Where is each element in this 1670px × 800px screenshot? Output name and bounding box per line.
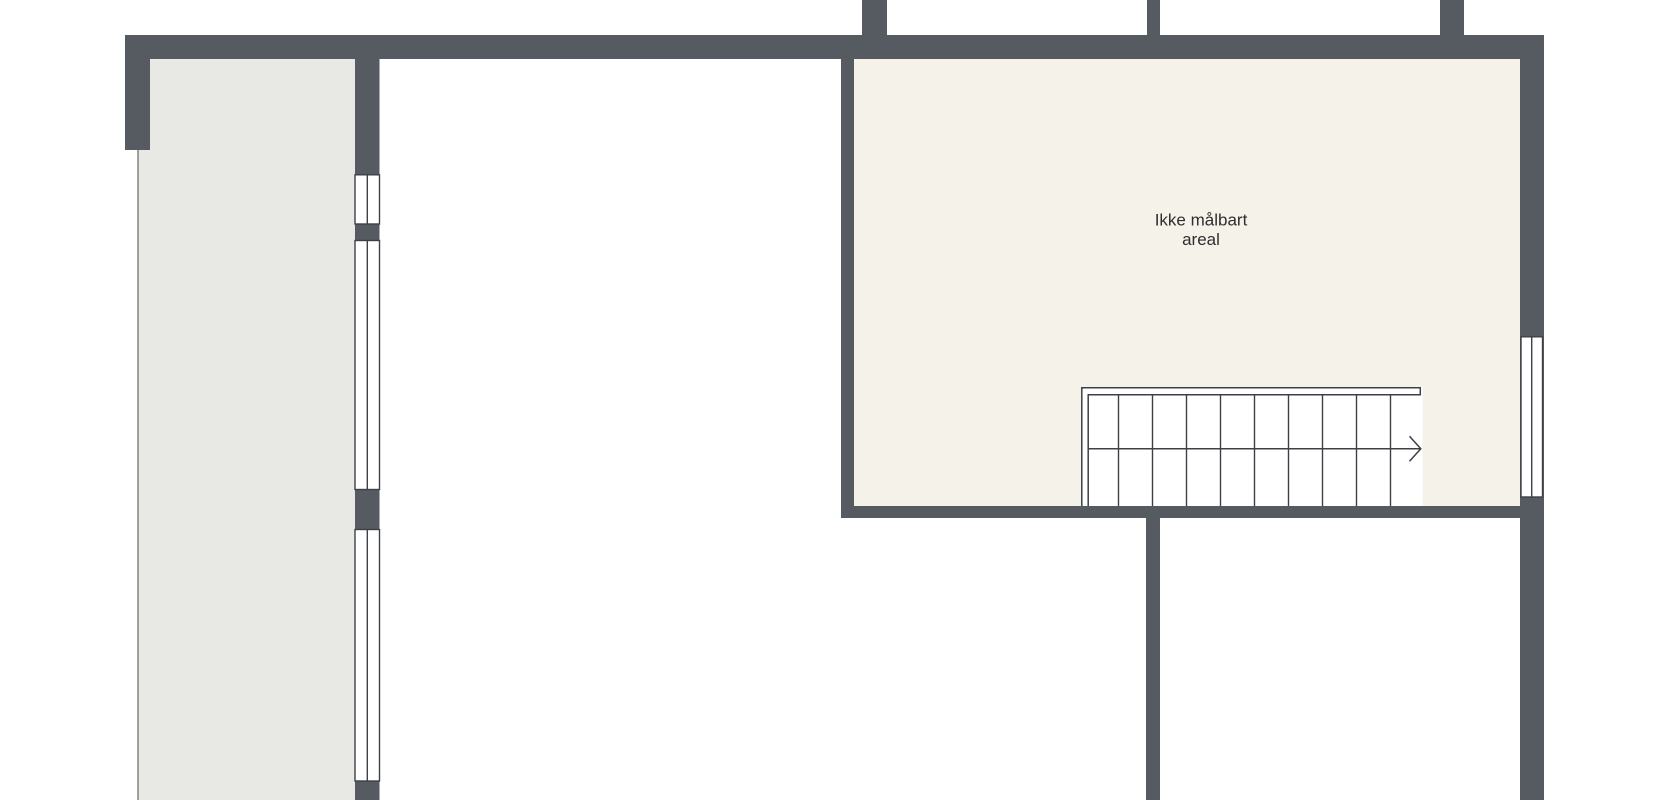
- svg-text:Ikke målbart: Ikke målbart: [1155, 211, 1248, 230]
- svg-text:areal: areal: [1182, 230, 1220, 249]
